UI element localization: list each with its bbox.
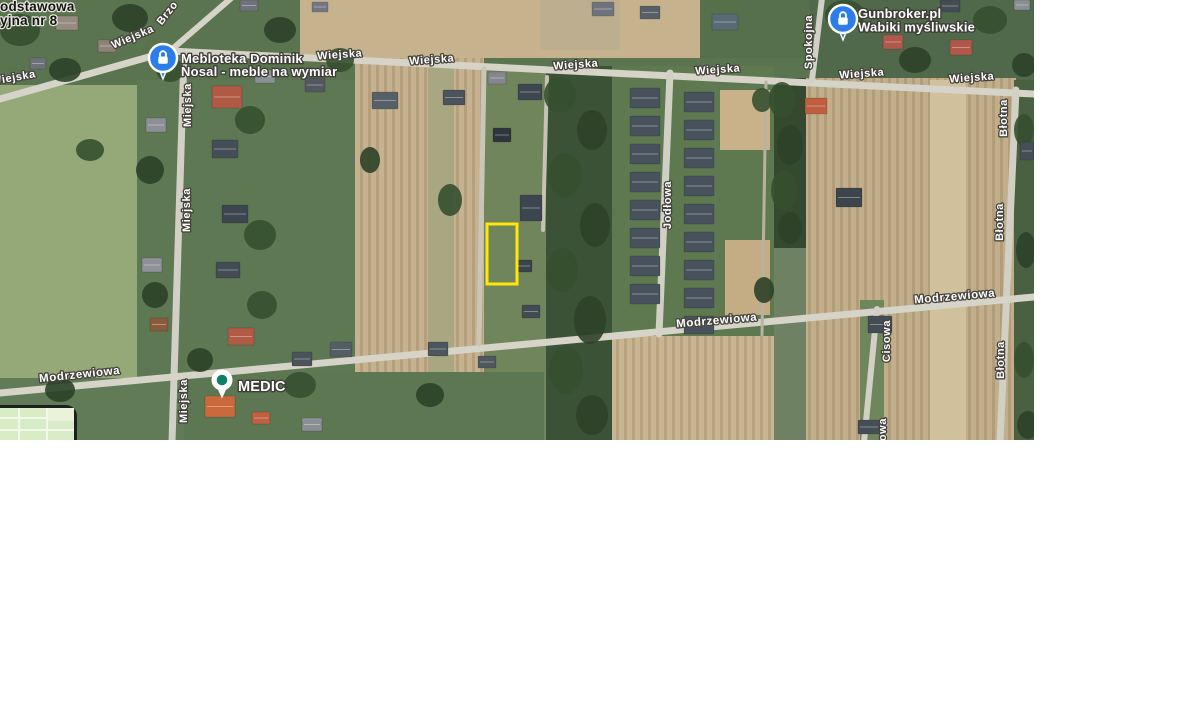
tree-cluster (76, 139, 104, 161)
lock-icon-body (838, 18, 847, 25)
field-stripes (612, 336, 774, 440)
tree-cluster (136, 156, 164, 184)
tree-cluster (769, 82, 795, 118)
street-label: Błotna (994, 203, 1006, 241)
street-label: Spokojna (803, 15, 815, 70)
tree-cluster (576, 395, 608, 435)
tree-cluster (544, 77, 576, 113)
tree-cluster (752, 88, 772, 112)
tree-cluster (548, 153, 582, 197)
street-label: Cisowa (881, 320, 893, 362)
tree-cluster (973, 6, 1007, 34)
street-label: Miejska (182, 83, 194, 127)
inset-road-line (18, 408, 20, 440)
tree-cluster (360, 147, 380, 173)
satellite-scene: WiejskaWiejskaBrzoWiejskaWiejskaWiejskaW… (0, 0, 1034, 440)
tree-cluster (778, 212, 802, 244)
street-label: Miejska (181, 188, 193, 232)
poi-label: odstawowa (0, 0, 75, 14)
tree-cluster (546, 248, 578, 292)
street-label: Jodłowa (662, 181, 674, 229)
tree-cluster (284, 372, 316, 398)
tree-cluster (899, 47, 931, 73)
tree-cluster (244, 220, 276, 250)
tree-cluster (574, 296, 606, 344)
tree-cluster (577, 110, 607, 150)
poi-label: MEDIC (238, 379, 286, 395)
page: WiejskaWiejskaBrzoWiejskaWiejskaWiejskaW… (0, 0, 1200, 711)
tree-cluster (416, 383, 444, 407)
poi-label: Nosal - meble na wymiar (181, 64, 337, 79)
tree-cluster (247, 291, 277, 319)
terrain-patch (930, 80, 966, 440)
tree-cluster (771, 170, 797, 210)
tree-cluster (777, 125, 803, 165)
map-inset-thumbnail[interactable] (0, 405, 77, 440)
street-label: Błotna (995, 341, 1007, 379)
tree-cluster (49, 58, 81, 82)
inset-road-line (0, 429, 74, 431)
tree-cluster (1014, 342, 1034, 378)
tree-cluster (754, 277, 774, 303)
map-canvas[interactable]: WiejskaWiejskaBrzoWiejskaWiejskaWiejskaW… (0, 0, 1034, 440)
street-label: Błotna (998, 99, 1010, 137)
tree-cluster (580, 203, 610, 247)
tree-cluster (438, 184, 462, 216)
poi-label: Wabiki myśliwskie (858, 20, 975, 35)
inset-terrain-patch (48, 408, 74, 421)
tree-cluster (235, 106, 265, 134)
tree-cluster (187, 348, 213, 372)
field-stripes (806, 78, 1016, 440)
tree-cluster (1014, 114, 1034, 146)
street-label: Cisowa (877, 418, 889, 440)
pin-dot (217, 375, 228, 386)
tree-cluster (549, 346, 583, 394)
tree-cluster (264, 17, 296, 43)
lock-icon-body (158, 57, 167, 64)
tree-cluster (142, 282, 168, 308)
poi-label: yjna nr 8 (0, 13, 58, 28)
street-label: Miejska (178, 379, 190, 423)
